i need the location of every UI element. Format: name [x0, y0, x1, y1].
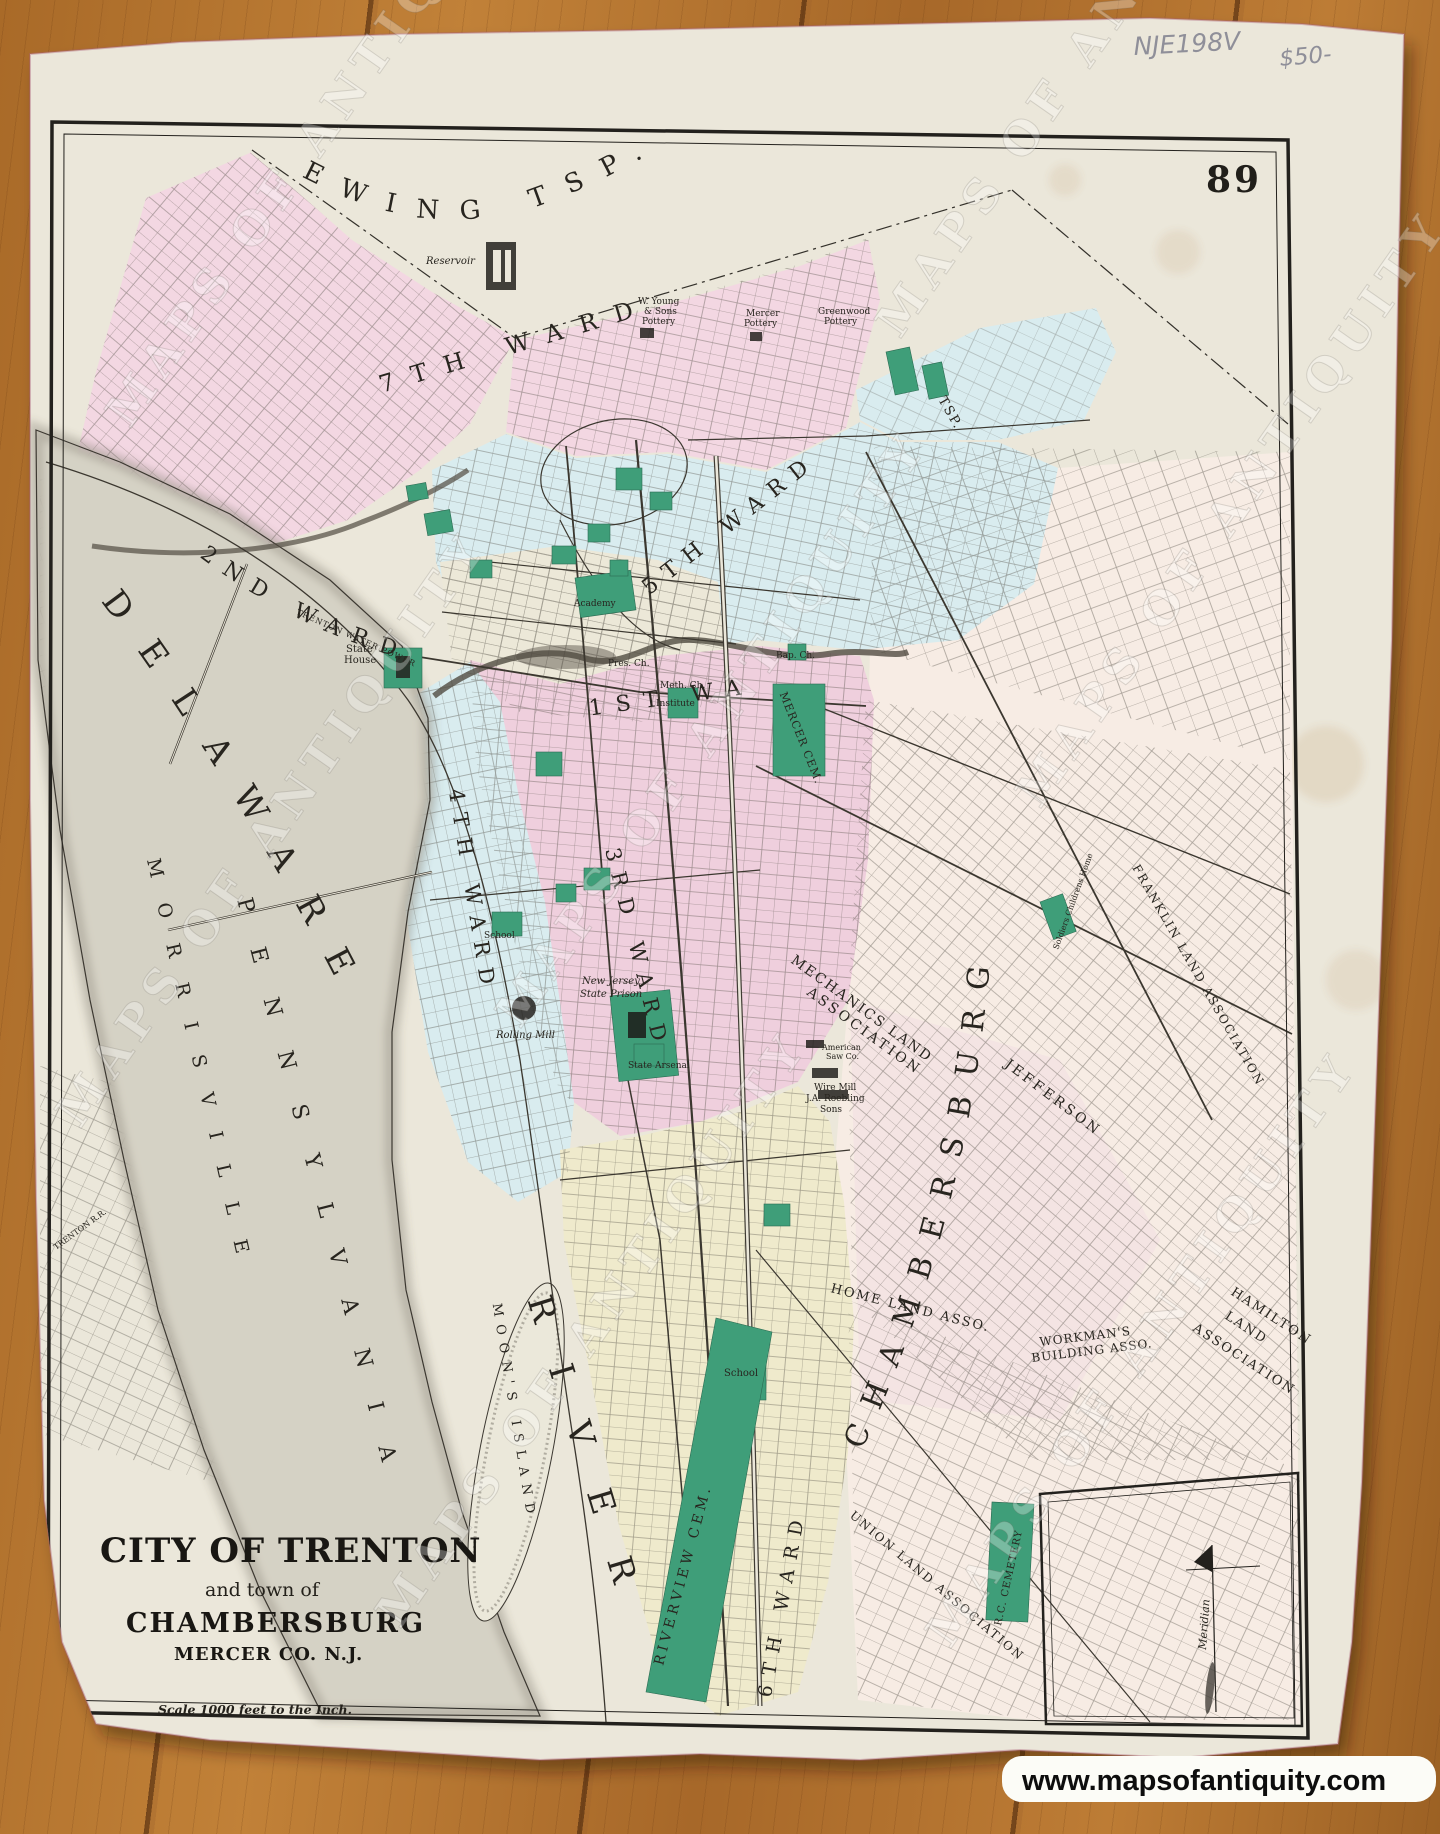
map-label: New Jersey — [581, 976, 640, 987]
photo-of-antique-map: { "photo": { "page_number": "89", "penci… — [0, 0, 1440, 1834]
map-label: Academy — [573, 599, 617, 609]
map-label: Mercer — [746, 309, 780, 319]
map-subtitle-1: and town of — [205, 1579, 321, 1601]
pencil-note-catalog: NJE198V — [1133, 26, 1243, 61]
map-label: State Arsenal — [628, 1061, 690, 1071]
map-label: & Sons — [644, 307, 677, 317]
map-label: Saw Co. — [826, 1052, 859, 1061]
page-number: 89 — [1206, 159, 1262, 201]
map-label: Greenwood — [818, 307, 870, 317]
map-label: Institute — [656, 699, 695, 709]
map-subtitle-3: MERCER CO. N.J. — [174, 1644, 363, 1665]
map-label: Reservoir — [425, 256, 476, 267]
antique-map-photo: EWING TSP.DELAWARERIVERPENNSYLVANIAMORRI… — [0, 0, 1440, 1834]
map-label: State Prison — [580, 989, 642, 1000]
map-label: School — [484, 931, 515, 941]
website-watermark-label: www.mapsofantiquity.com — [1002, 1756, 1436, 1802]
map-label: Pottery — [744, 319, 778, 329]
map-label: American — [821, 1043, 861, 1052]
website-url: www.mapsofantiquity.com — [1021, 1765, 1386, 1797]
map-label: Sons — [820, 1105, 842, 1115]
map-label: Pres. Ch. — [608, 659, 650, 669]
map-label: J.A. Roebling — [805, 1094, 865, 1104]
map-label: School — [724, 1368, 758, 1379]
map-scale-note: Scale 1000 feet to the Inch. — [158, 1702, 352, 1717]
map-label: Pottery — [642, 317, 676, 327]
map-label: Meth. Ch. — [660, 681, 705, 691]
map-label: Pottery — [824, 317, 858, 327]
map-label: Wire Mill — [814, 1083, 856, 1093]
map-label: W. Young — [638, 297, 680, 307]
pencil-note-price: $50- — [1278, 42, 1332, 72]
